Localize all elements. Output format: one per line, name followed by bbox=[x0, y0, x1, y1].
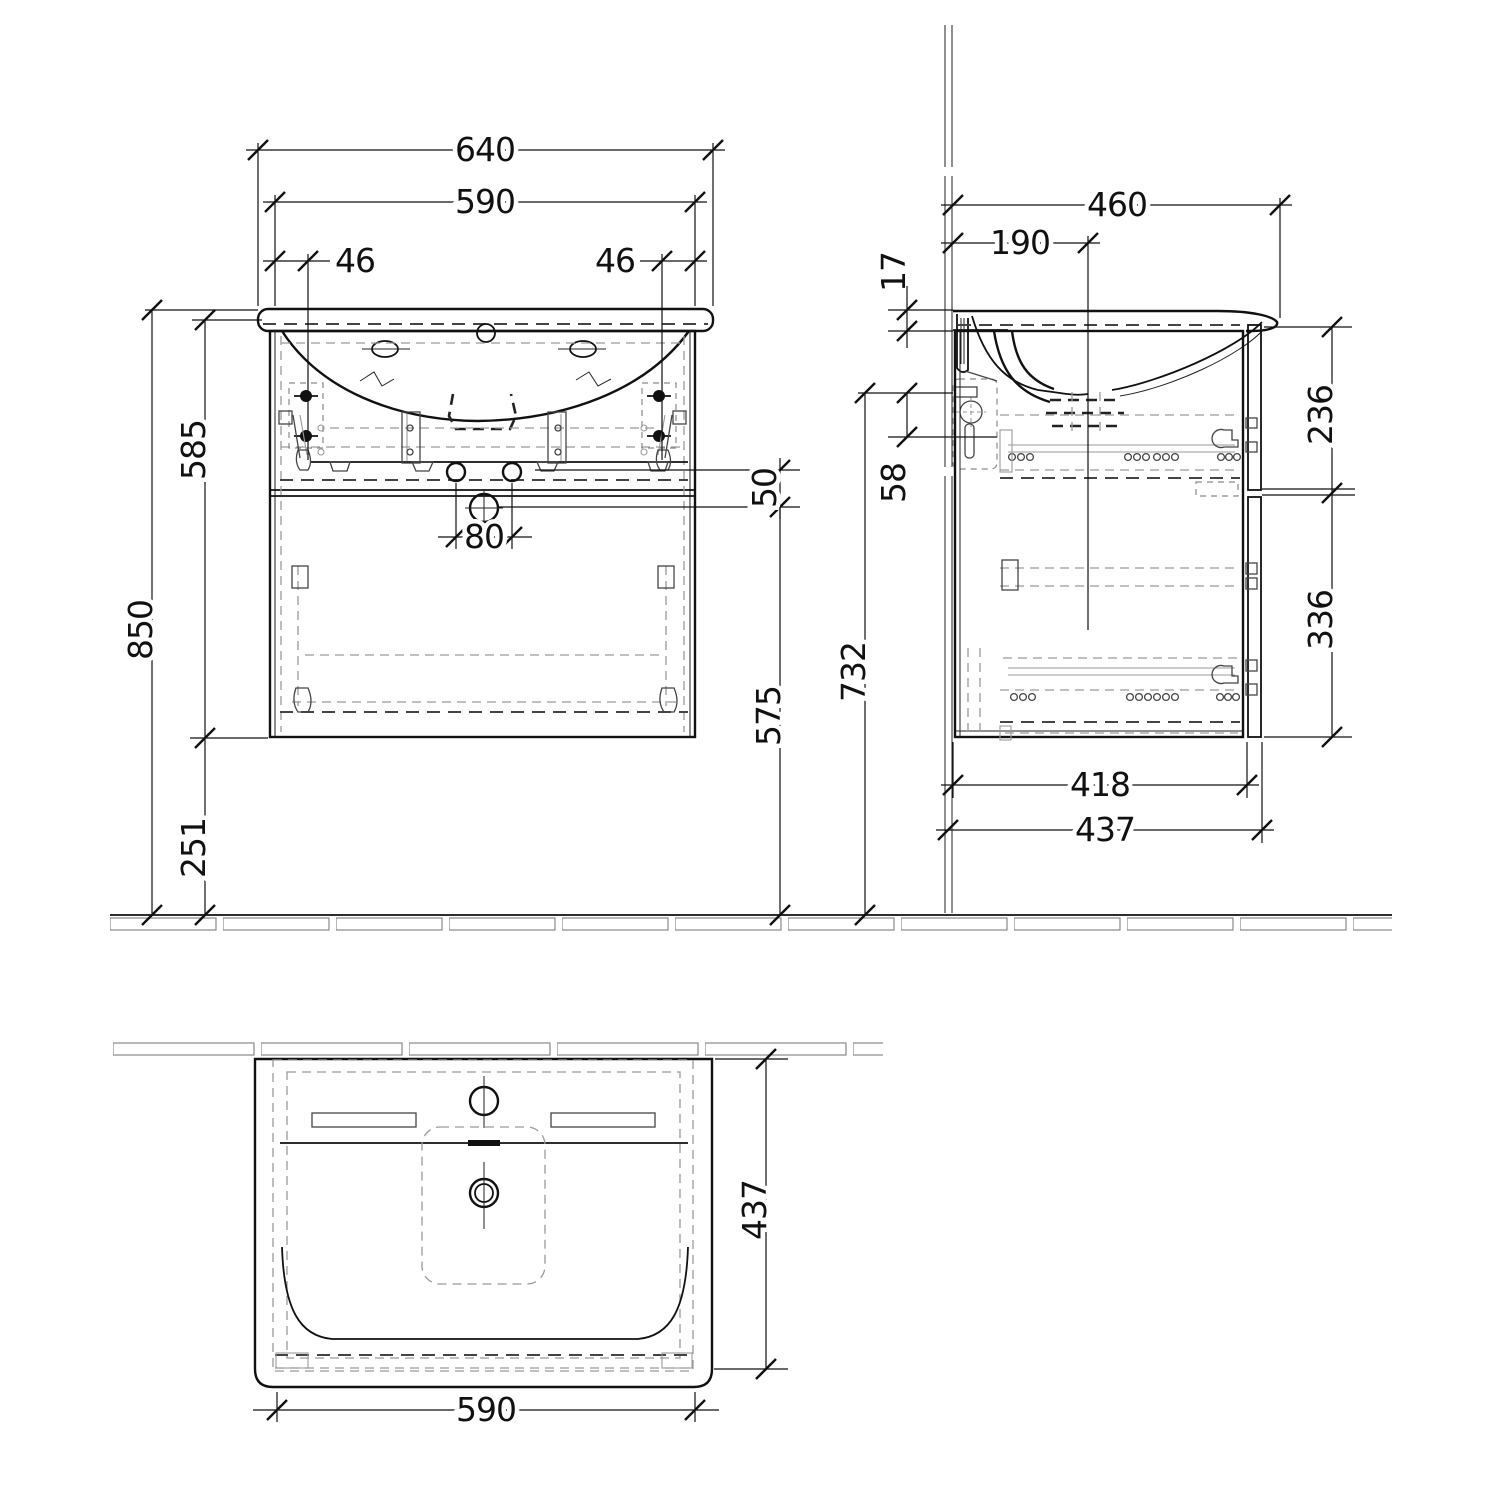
dim-left-offset: 46 bbox=[263, 241, 375, 460]
dimensions-front: 640 590 46 46 bbox=[121, 130, 953, 925]
dim-plan-depth: 437 bbox=[714, 1049, 788, 1379]
dim-label-590: 590 bbox=[455, 182, 515, 221]
floor-tiles bbox=[110, 917, 1392, 931]
cabinet-side-outline bbox=[955, 331, 1243, 737]
drawer-slide-side-top bbox=[1000, 415, 1257, 496]
dim-rail-offset: 50 bbox=[498, 458, 800, 519]
dim-label-437-plan: 437 bbox=[735, 1180, 774, 1240]
dim-lower-front-height: 336 bbox=[1264, 493, 1352, 747]
dim-label-850: 850 bbox=[121, 600, 160, 660]
dim-label-17: 17 bbox=[874, 252, 913, 292]
floor-line bbox=[110, 915, 1392, 931]
dim-cabinet-height: 585 bbox=[174, 310, 262, 738]
dim-label-590-plan: 590 bbox=[456, 1390, 516, 1429]
dim-basin-thickness: 17 bbox=[874, 252, 953, 348]
side-view bbox=[945, 25, 1355, 913]
overflow-hole bbox=[477, 324, 495, 342]
cabinet-hidden-plan bbox=[273, 1060, 693, 1371]
dim-label-46-left: 46 bbox=[335, 241, 375, 280]
dim-label-251: 251 bbox=[174, 818, 213, 878]
basin-bowl-outline bbox=[282, 331, 689, 421]
basin-top-side bbox=[953, 311, 1277, 331]
dim-label-236: 236 bbox=[1301, 385, 1340, 445]
bowl-front-curve bbox=[282, 1247, 688, 1339]
dim-label-58: 58 bbox=[874, 463, 913, 503]
wall-bracket-front-left bbox=[279, 383, 324, 470]
drawer-slide-side-bottom bbox=[968, 648, 1257, 740]
dim-bottom-clearance: 251 bbox=[174, 728, 268, 925]
fixing-bolt-hole-left bbox=[447, 463, 465, 481]
drawer-slide-front-right bbox=[658, 566, 677, 712]
vanity-technical-drawing: 640 590 46 46 bbox=[0, 0, 1500, 1500]
dim-label-437-side: 437 bbox=[1075, 810, 1135, 849]
bowl-section-left bbox=[972, 316, 1088, 395]
dim-bracket-offset: 58 bbox=[874, 383, 997, 503]
dim-label-640: 640 bbox=[455, 130, 515, 169]
dim-outlet-height: 575 bbox=[749, 507, 790, 925]
dim-label-336: 336 bbox=[1301, 590, 1340, 650]
overflow-channel bbox=[957, 314, 968, 372]
dim-label-732: 732 bbox=[834, 642, 873, 702]
dim-upper-front-height: 236 bbox=[1264, 317, 1352, 503]
dim-cabinet-width: 590 bbox=[263, 182, 707, 306]
drain-recess bbox=[449, 394, 516, 429]
dim-label-418: 418 bbox=[1070, 765, 1130, 804]
dim-label-50: 50 bbox=[745, 468, 784, 508]
center-clip-right bbox=[548, 412, 566, 463]
technical-drawing-page: 640 590 46 46 bbox=[0, 0, 1500, 1500]
bowl-section-right bbox=[1112, 322, 1262, 390]
drawer-rail-middle bbox=[1000, 560, 1257, 590]
wall-line bbox=[945, 25, 952, 913]
wall-bracket-front-right bbox=[641, 383, 686, 470]
fixing-bolt-hole-right bbox=[503, 463, 521, 481]
dimensions-side: 460 190 17 58 bbox=[874, 185, 1352, 849]
siphon-trap bbox=[994, 331, 1124, 432]
dim-label-190: 190 bbox=[990, 223, 1050, 262]
dim-label-575: 575 bbox=[749, 686, 788, 746]
dim-label-460: 460 bbox=[1087, 185, 1147, 224]
dim-plan-width: 590 bbox=[253, 1390, 719, 1429]
center-clip-left bbox=[402, 412, 420, 463]
dimensions-plan: 437 590 bbox=[253, 1049, 788, 1429]
drawer-front-bottom-side bbox=[1248, 497, 1261, 737]
basin-top-front bbox=[258, 309, 713, 331]
drawer-front-top-side bbox=[1248, 325, 1261, 490]
dim-label-585: 585 bbox=[174, 420, 213, 480]
dim-cabinet-depth: 418 bbox=[941, 742, 1259, 804]
dim-label-80: 80 bbox=[464, 517, 504, 556]
drawer-slide-front-left bbox=[292, 566, 311, 712]
dim-label-46-right: 46 bbox=[595, 241, 635, 280]
wall-tiles-plan bbox=[113, 1042, 883, 1056]
